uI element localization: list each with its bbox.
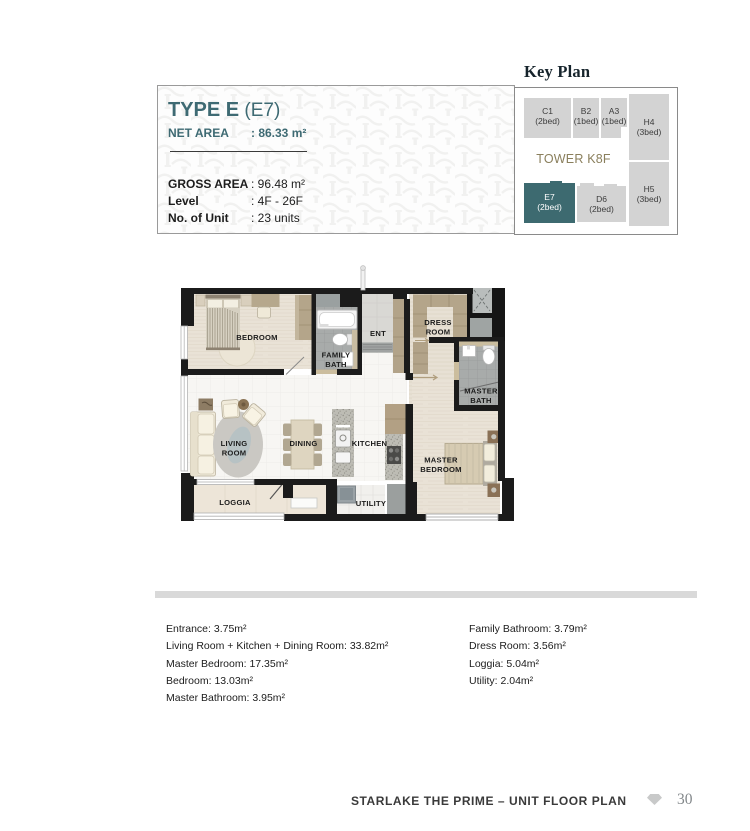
svg-text:BATH: BATH — [325, 360, 347, 369]
svg-text:ROOM: ROOM — [222, 449, 247, 458]
svg-text:ROOM: ROOM — [426, 328, 451, 337]
svg-text:KITCHEN: KITCHEN — [352, 439, 388, 448]
svg-text:LIVING: LIVING — [221, 439, 248, 448]
svg-text:BEDROOM: BEDROOM — [236, 333, 277, 342]
svg-text:DRESS: DRESS — [424, 318, 451, 327]
svg-text:BATH: BATH — [470, 396, 492, 405]
svg-text:MASTER: MASTER — [464, 387, 498, 396]
svg-text:FAMILY: FAMILY — [322, 351, 351, 360]
svg-text:MASTER: MASTER — [424, 456, 458, 465]
svg-text:ENT: ENT — [370, 329, 386, 338]
svg-text:LOGGIA: LOGGIA — [219, 498, 251, 507]
svg-text:DINING: DINING — [289, 439, 317, 448]
svg-text:BEDROOM: BEDROOM — [420, 465, 461, 474]
svg-text:UTILITY: UTILITY — [356, 499, 386, 508]
